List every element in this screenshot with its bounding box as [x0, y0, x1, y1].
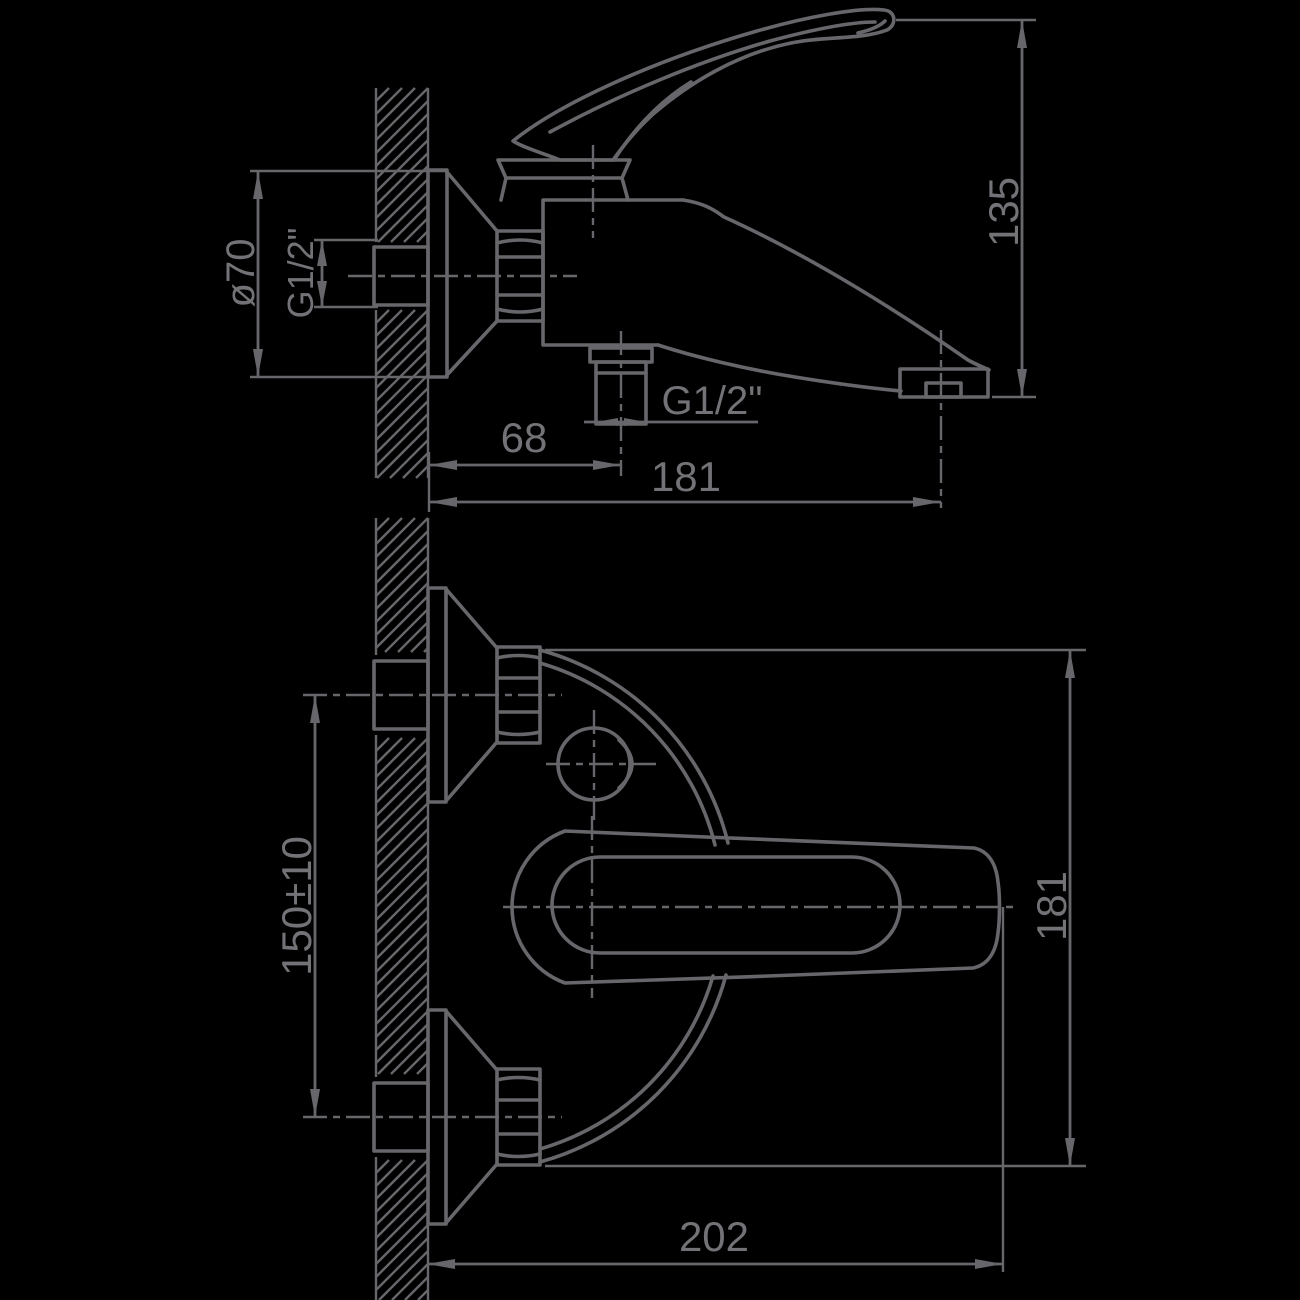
spout-top-edge: [683, 200, 989, 370]
dim-pipe-centers: 150±10: [273, 695, 320, 1117]
diverter-crosshair: [546, 710, 660, 820]
escutcheon-flange: [428, 170, 447, 377]
wall-hatch-middle: [376, 738, 428, 1074]
cartridge-cap: [498, 160, 630, 200]
dim-overall-height: 135: [896, 20, 1036, 397]
dim-spout-reach: 181: [429, 453, 941, 507]
lever-handle-outline: [513, 9, 894, 160]
front-view: 150±10 181 202: [273, 518, 1086, 1300]
dim-overall-width: 202: [427, 907, 1003, 1272]
wall-hatch-bottom: [376, 1160, 428, 1300]
dim-wall-thread: G1/2": [280, 228, 378, 319]
dim-label-overall-width: 202: [679, 1213, 749, 1260]
dim-label-overall-height: 135: [980, 177, 1027, 247]
mixer-body: [543, 200, 683, 345]
dim-label-shower-thread: G1/2": [662, 379, 763, 423]
dim-label-spout-reach: 181: [651, 453, 721, 500]
dim-shower-thread: G1/2": [584, 379, 762, 426]
escutcheon-cone: [447, 172, 497, 375]
wall-hatch-top: [376, 518, 428, 652]
technical-drawing: ø70 G1/2" 135 68: [0, 0, 1300, 1300]
wall-hatch-upper: [376, 88, 428, 242]
dim-label-shower-offset: 68: [501, 414, 548, 461]
dim-escutcheon-diameter: ø70: [219, 171, 447, 377]
side-view: ø70 G1/2" 135 68: [219, 9, 1036, 512]
dim-shower-offset: 68: [429, 414, 621, 512]
dim-label-pipe-centers: 150±10: [273, 836, 320, 976]
dim-label-wall-thread: G1/2": [280, 228, 321, 319]
handle-grip-plan: [552, 857, 900, 953]
dim-label-body-span: 181: [1028, 871, 1075, 941]
wall-hatch-lower: [376, 310, 428, 478]
dim-label-escutcheon-diameter: ø70: [219, 239, 263, 308]
aerator-insert: [926, 383, 961, 397]
